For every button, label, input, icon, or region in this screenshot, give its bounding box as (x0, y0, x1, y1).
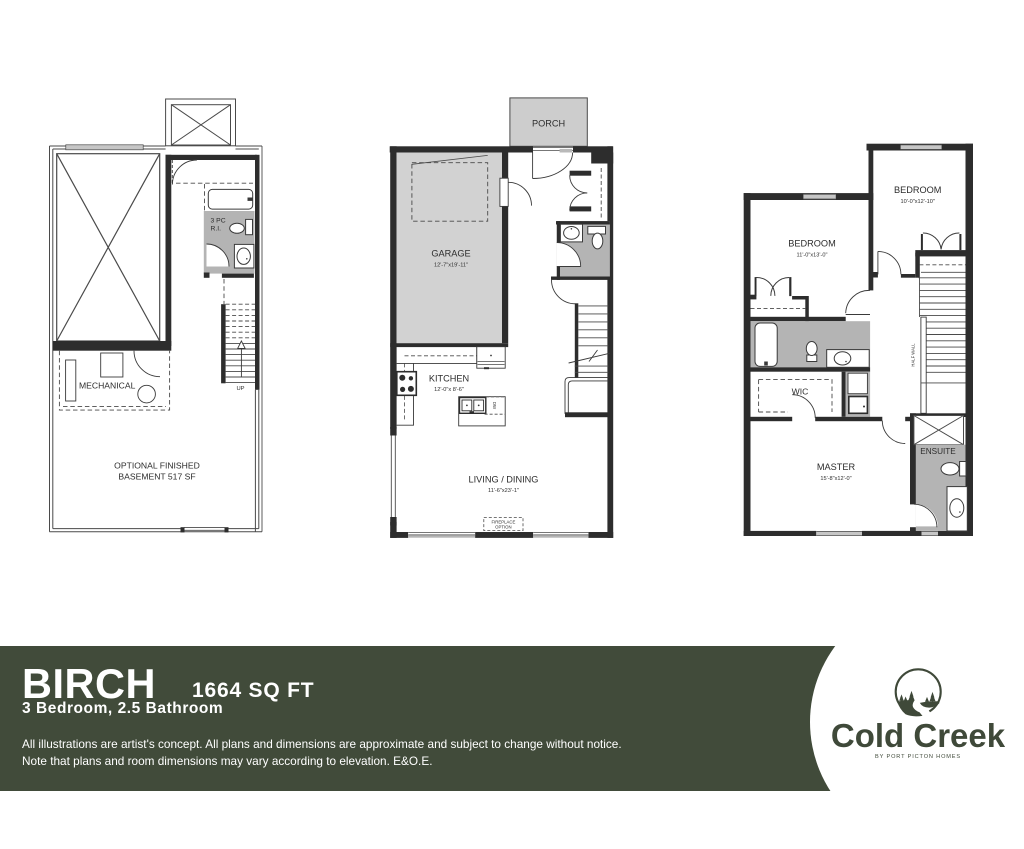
svg-text:OPTION: OPTION (495, 525, 511, 530)
svg-text:UP: UP (237, 386, 245, 392)
svg-text:12'-7"x19'-11": 12'-7"x19'-11" (434, 263, 468, 269)
svg-text:BEDROOM: BEDROOM (894, 185, 941, 195)
svg-text:BASEMENT 517 SF: BASEMENT 517 SF (118, 472, 195, 482)
svg-text:R.I.: R.I. (211, 226, 222, 233)
svg-text:FIREPLACE: FIREPLACE (491, 519, 515, 524)
svg-text:11'-6"x23'-1": 11'-6"x23'-1" (488, 488, 519, 494)
svg-text:LIVING / DINING: LIVING / DINING (469, 475, 539, 485)
svg-text:MASTER: MASTER (817, 462, 856, 472)
svg-text:DW: DW (492, 402, 497, 410)
svg-text:OPTIONAL FINISHED: OPTIONAL FINISHED (114, 461, 200, 471)
svg-text:11'-0"x13'-0": 11'-0"x13'-0" (797, 253, 828, 259)
svg-text:ENSUITE: ENSUITE (920, 447, 956, 456)
svg-text:KITCHEN: KITCHEN (429, 374, 469, 384)
svg-text:3 PC: 3 PC (211, 218, 226, 225)
svg-text:15'-8"x12'-0": 15'-8"x12'-0" (820, 476, 851, 482)
svg-text:MECHANICAL: MECHANICAL (79, 381, 136, 391)
svg-text:HALF WALL: HALF WALL (911, 343, 916, 367)
svg-text:BEDROOM: BEDROOM (788, 239, 835, 249)
svg-text:12'-0"x 8'-6": 12'-0"x 8'-6" (434, 387, 464, 393)
svg-text:10'-0"x12'-10": 10'-0"x12'-10" (900, 199, 934, 205)
svg-text:GARAGE: GARAGE (431, 249, 470, 259)
svg-text:PORCH: PORCH (532, 119, 565, 129)
